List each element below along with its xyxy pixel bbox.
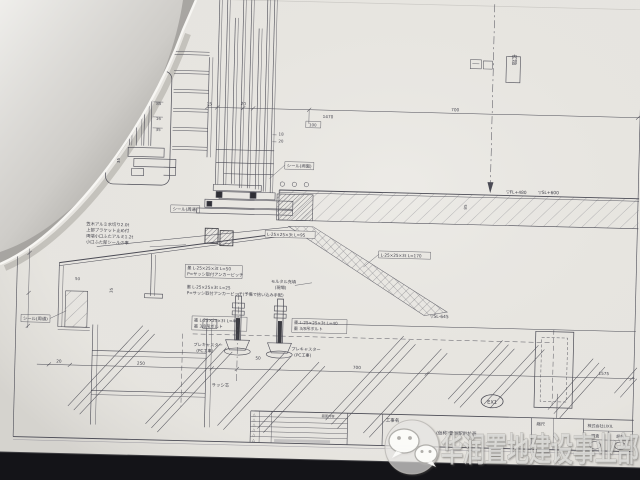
watermark-text: 华润置地建设事业部	[441, 430, 639, 469]
dim-50-anchor: 50	[255, 355, 261, 360]
dim-85-slab: 85	[463, 204, 468, 210]
seal-mid-label: シール(両面)	[287, 163, 312, 170]
company-name: 株式会社LIXIL	[587, 422, 613, 429]
dim-250: 250	[137, 361, 145, 366]
angle-170-label: L-25×25×3t L=170	[381, 252, 422, 258]
rev-mark-6: △	[252, 437, 255, 442]
dim-20-top: 20	[241, 101, 247, 106]
dim-18: 18	[279, 131, 285, 136]
dim-700-top: 700	[451, 107, 459, 112]
grid-bubble-label: EX1	[487, 400, 497, 406]
dim-100: 100	[309, 122, 317, 127]
dim-35-box1: 35	[156, 127, 162, 132]
dim-16-box: 16	[156, 116, 162, 121]
photo-of-architectural-detail-drawing: 85 16 35 35	[0, 0, 640, 480]
dim-35-wall: 35	[109, 287, 114, 293]
dim-1575: 1575	[598, 371, 609, 376]
blueprint-photo: 85 16 35 35	[0, 0, 640, 480]
dim-15: 15	[207, 101, 213, 106]
level-sl600: ▽SL+600	[538, 190, 559, 197]
dim-1470: 1470	[323, 114, 334, 119]
level-sl645: ▽SL-645	[430, 314, 449, 320]
dim-85-box: 85	[156, 101, 162, 106]
rev-mark-5: △	[252, 432, 255, 437]
region-label: 内部	[510, 53, 517, 67]
dim-50-flash: 50	[75, 276, 81, 281]
dim-700-bot: 700	[353, 365, 361, 370]
dim-20-bot: 20	[56, 359, 62, 364]
wechat-icon	[385, 420, 439, 474]
dim-35-box2: 35	[116, 157, 121, 163]
angle-95-label: L-25×25×3t L=95	[267, 232, 306, 238]
dim-20-mid: 20	[278, 138, 284, 143]
level-fl480: ▽FL+480	[506, 190, 527, 197]
table-header: 図面内容	[322, 413, 336, 418]
